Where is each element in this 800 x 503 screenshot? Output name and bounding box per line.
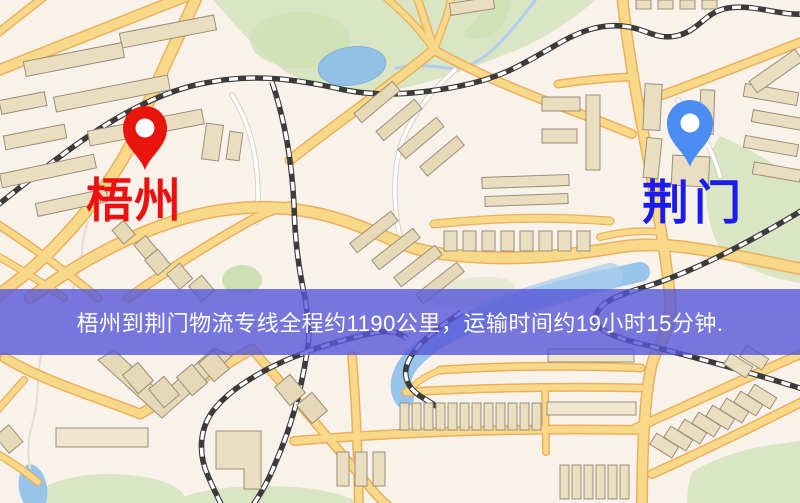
map-canvas	[0, 0, 800, 503]
route-info-text: 梧州到荆门物流专线全程约1190公里，运输时间约19小时15分钟.	[77, 306, 724, 338]
route-info-banner: 梧州到荆门物流专线全程约1190公里，运输时间约19小时15分钟.	[0, 289, 800, 355]
logistics-map-image: 梧州 荆门 梧州到荆门物流专线全程约1190公里，运输时间约19小时15分钟.	[0, 0, 800, 503]
origin-city-label: 梧州	[86, 177, 182, 224]
destination-city-label: 荆门	[642, 179, 746, 226]
